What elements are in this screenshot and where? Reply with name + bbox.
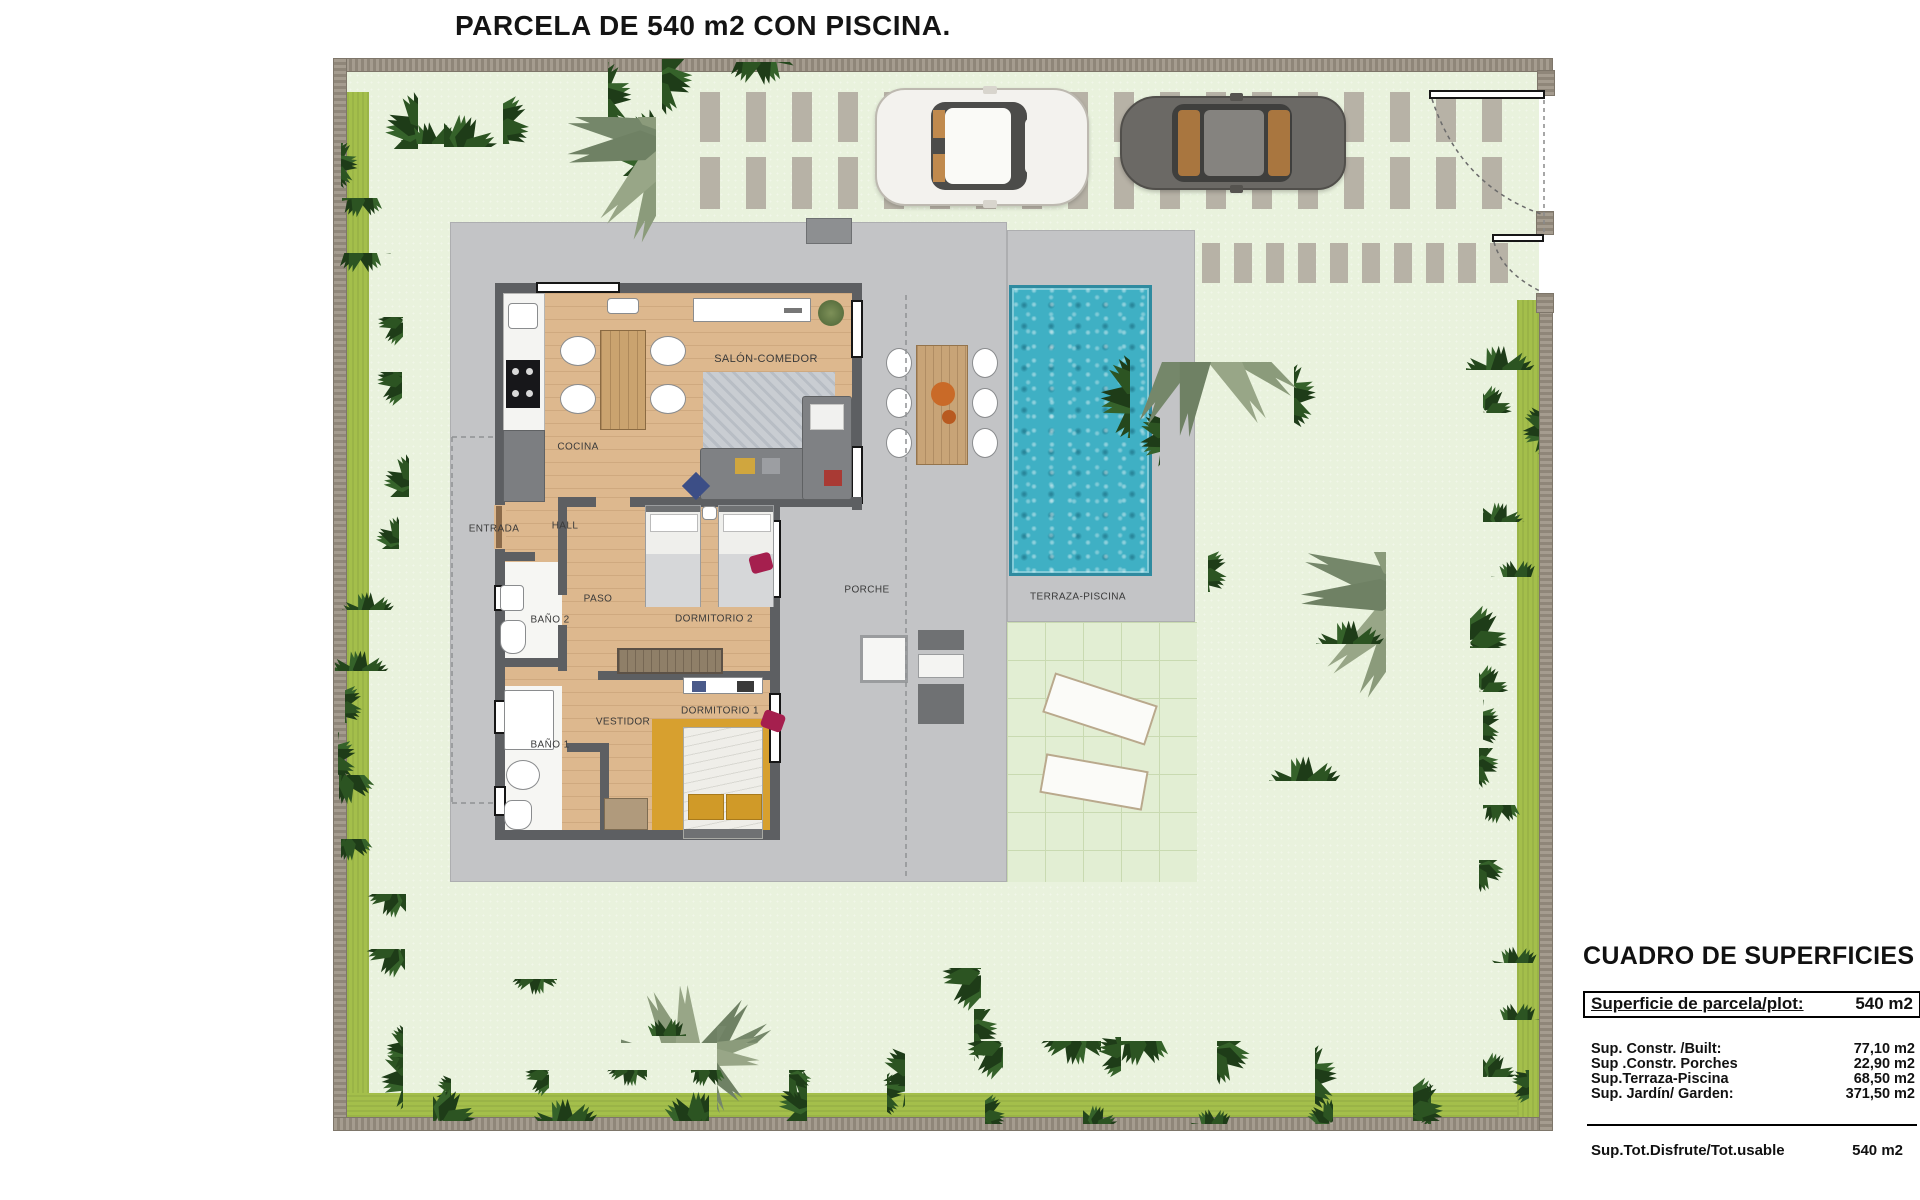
living-window [851,300,863,358]
summary-total-row: Sup.Tot.Disfrute/Tot.usable 540 m2 [1583,1142,1920,1159]
row-value: 77,10 m2 [1854,1042,1915,1057]
dining-chair [560,384,596,414]
car-seat [933,110,945,138]
cushion-red [824,470,842,486]
vestidor-bench [604,798,648,830]
cushion-yellow [735,458,755,474]
paver-strip [1490,243,1508,283]
row-label: Sup. Jardín/ Garden: [1591,1087,1734,1102]
grass-strip-right [1517,300,1539,1117]
dining-chair [560,336,596,366]
paver-strip [1394,243,1412,283]
paver-strip [1202,243,1220,283]
boundary-wall-top [333,58,1553,72]
boundary-wall-right [1539,300,1553,1131]
room-label-salon-comedor: SALÓN-COMEDOR [714,353,818,365]
paver-strip [1482,92,1502,142]
room-label-vestidor: VESTIDOR [596,717,650,728]
living-south-wall-a [558,497,596,507]
paver-strip [1234,243,1252,283]
summary-row: Sup .Constr. Porches 22,90 m2 [1591,1057,1915,1072]
wall-hall-bath2 [495,552,535,561]
row-label: Sup.Terraza-Piscina [1591,1072,1729,1087]
paver-strip [1426,243,1444,283]
paver-strip [1362,243,1380,283]
room-label-dormitorio-2: DORMITORIO 2 [675,614,753,625]
paver-strip [746,157,766,209]
bathroom1-sink [506,760,540,790]
roof-equipment [806,218,852,244]
car-white [875,88,1089,206]
summary-separator [1587,1124,1917,1126]
room-label-bano-2: BAÑO 2 [530,615,569,626]
paver-strip [792,92,812,142]
summary-heading: CUADRO DE SUPERFICIES [1583,942,1920,971]
nightstand [702,506,717,520]
cushion-grey [762,458,780,474]
car-mirror [1230,185,1243,193]
gate-pillar-bottom [1536,293,1554,313]
paver-strip [1344,92,1364,142]
porch-chair [886,348,912,378]
room-label-cocina: COCINA [557,442,598,453]
room-label-dormitorio-1: DORMITORIO 1 [681,706,759,717]
porch-chair [886,428,912,458]
summary-row: Sup.Terraza-Piscina 68,50 m2 [1591,1072,1915,1087]
plot-area-label: Superficie de parcela/plot: [1591,994,1804,1014]
sunbathing-lawn [1007,622,1197,882]
row-label: Sup. Constr. /Built: [1591,1042,1722,1057]
paver-strip [700,157,720,209]
wardrobe [617,648,723,674]
car-grey [1120,96,1346,190]
bathroom2-sink [500,585,524,611]
cushion-white [810,404,844,430]
paver-strip [838,157,858,209]
grass-strip-bottom [347,1093,1539,1117]
total-value: 540 m2 [1852,1142,1903,1159]
row-value: 371,50 m2 [1846,1087,1915,1102]
living-sliding-door [851,446,863,504]
room-label-bano-1: BAÑO 1 [530,740,569,751]
porch-chair [972,428,998,458]
dining-chair [650,384,686,414]
room-label-terraza-piscina: TERRAZA-PISCINA [1030,592,1126,603]
boundary-wall-left [333,58,347,1131]
row-value: 68,50 m2 [1854,1072,1915,1087]
bathroom1-toilet [504,800,532,830]
porch-cabinet-1 [918,630,964,650]
row-value: 22,90 m2 [1854,1057,1915,1072]
paver-strip [1458,243,1476,283]
kitchen-cooktop [506,360,540,408]
platter-orange-small [942,410,956,424]
platter-orange [931,382,955,406]
wall-bath-divider [495,658,567,667]
surface-summary-table: CUADRO DE SUPERFICIES Superficie de parc… [1583,942,1920,1159]
paver-strip [1298,243,1316,283]
room-label-entrada: ENTRADA [469,524,520,535]
car-seat [933,154,945,182]
row-label: Sup .Constr. Porches [1591,1057,1738,1072]
page-title: PARCELA DE 540 m2 CON PISCINA. [455,10,951,42]
dining-head-chair [607,298,639,314]
paver-strip [792,157,812,209]
boundary-wall-bottom [333,1117,1553,1131]
car-mirror [983,200,997,208]
kitchen-tall-cabinet [503,430,545,502]
porch-chair [972,348,998,378]
tv-console [693,298,811,322]
site-plan-page: PARCELA DE 540 m2 CON PISCINA. [0,0,1920,1200]
paver-strip [1436,92,1456,142]
paver-strip [746,92,766,142]
paver-strip [700,92,720,142]
pedestrian-gate [1492,234,1544,242]
car-mirror [983,86,997,94]
paver-strip [1344,157,1364,209]
paver-strip [1266,243,1284,283]
paver-strip [1390,157,1410,209]
summary-rows: Sup. Constr. /Built: 77,10 m2 Sup .Const… [1583,1042,1920,1102]
dining-table [600,330,646,430]
paver-strip [1330,243,1348,283]
plot-area-value: 540 m2 [1855,994,1913,1014]
room-label-hall: HALL [552,521,579,532]
car-seat [1178,110,1200,176]
grass-strip-left [347,92,369,1117]
room-label-paso: PASO [584,594,613,605]
plot-area-row: Superficie de parcela/plot: 540 m2 [1583,991,1920,1018]
car-seat [1268,110,1290,176]
paver-strip [1436,157,1456,209]
plant-pot [818,300,844,326]
summary-row: Sup. Constr. /Built: 77,10 m2 [1591,1042,1915,1057]
desk [683,677,763,694]
vehicle-gate [1429,90,1545,99]
porch-chair [972,388,998,418]
paver-strip [1390,92,1410,142]
single-bed-1 [645,505,701,607]
kitchen-sink [508,303,538,329]
porch-cabinet-2 [918,684,964,724]
kitchen-window [536,282,620,293]
gate-pillar-middle [1536,211,1554,235]
room-label-porche: PORCHE [844,585,889,596]
porch-door-frame [860,635,908,683]
bathroom2-toilet [500,620,526,654]
paver-strip [838,92,858,142]
paver-strip [1482,157,1502,209]
porch-table-white [918,654,964,678]
dining-chair [650,336,686,366]
car-mirror [1230,93,1243,101]
double-bed [683,727,763,839]
summary-row: Sup. Jardín/ Garden: 371,50 m2 [1591,1087,1915,1102]
swimming-pool [1009,285,1152,576]
porch-chair [886,388,912,418]
total-label: Sup.Tot.Disfrute/Tot.usable [1591,1142,1785,1159]
